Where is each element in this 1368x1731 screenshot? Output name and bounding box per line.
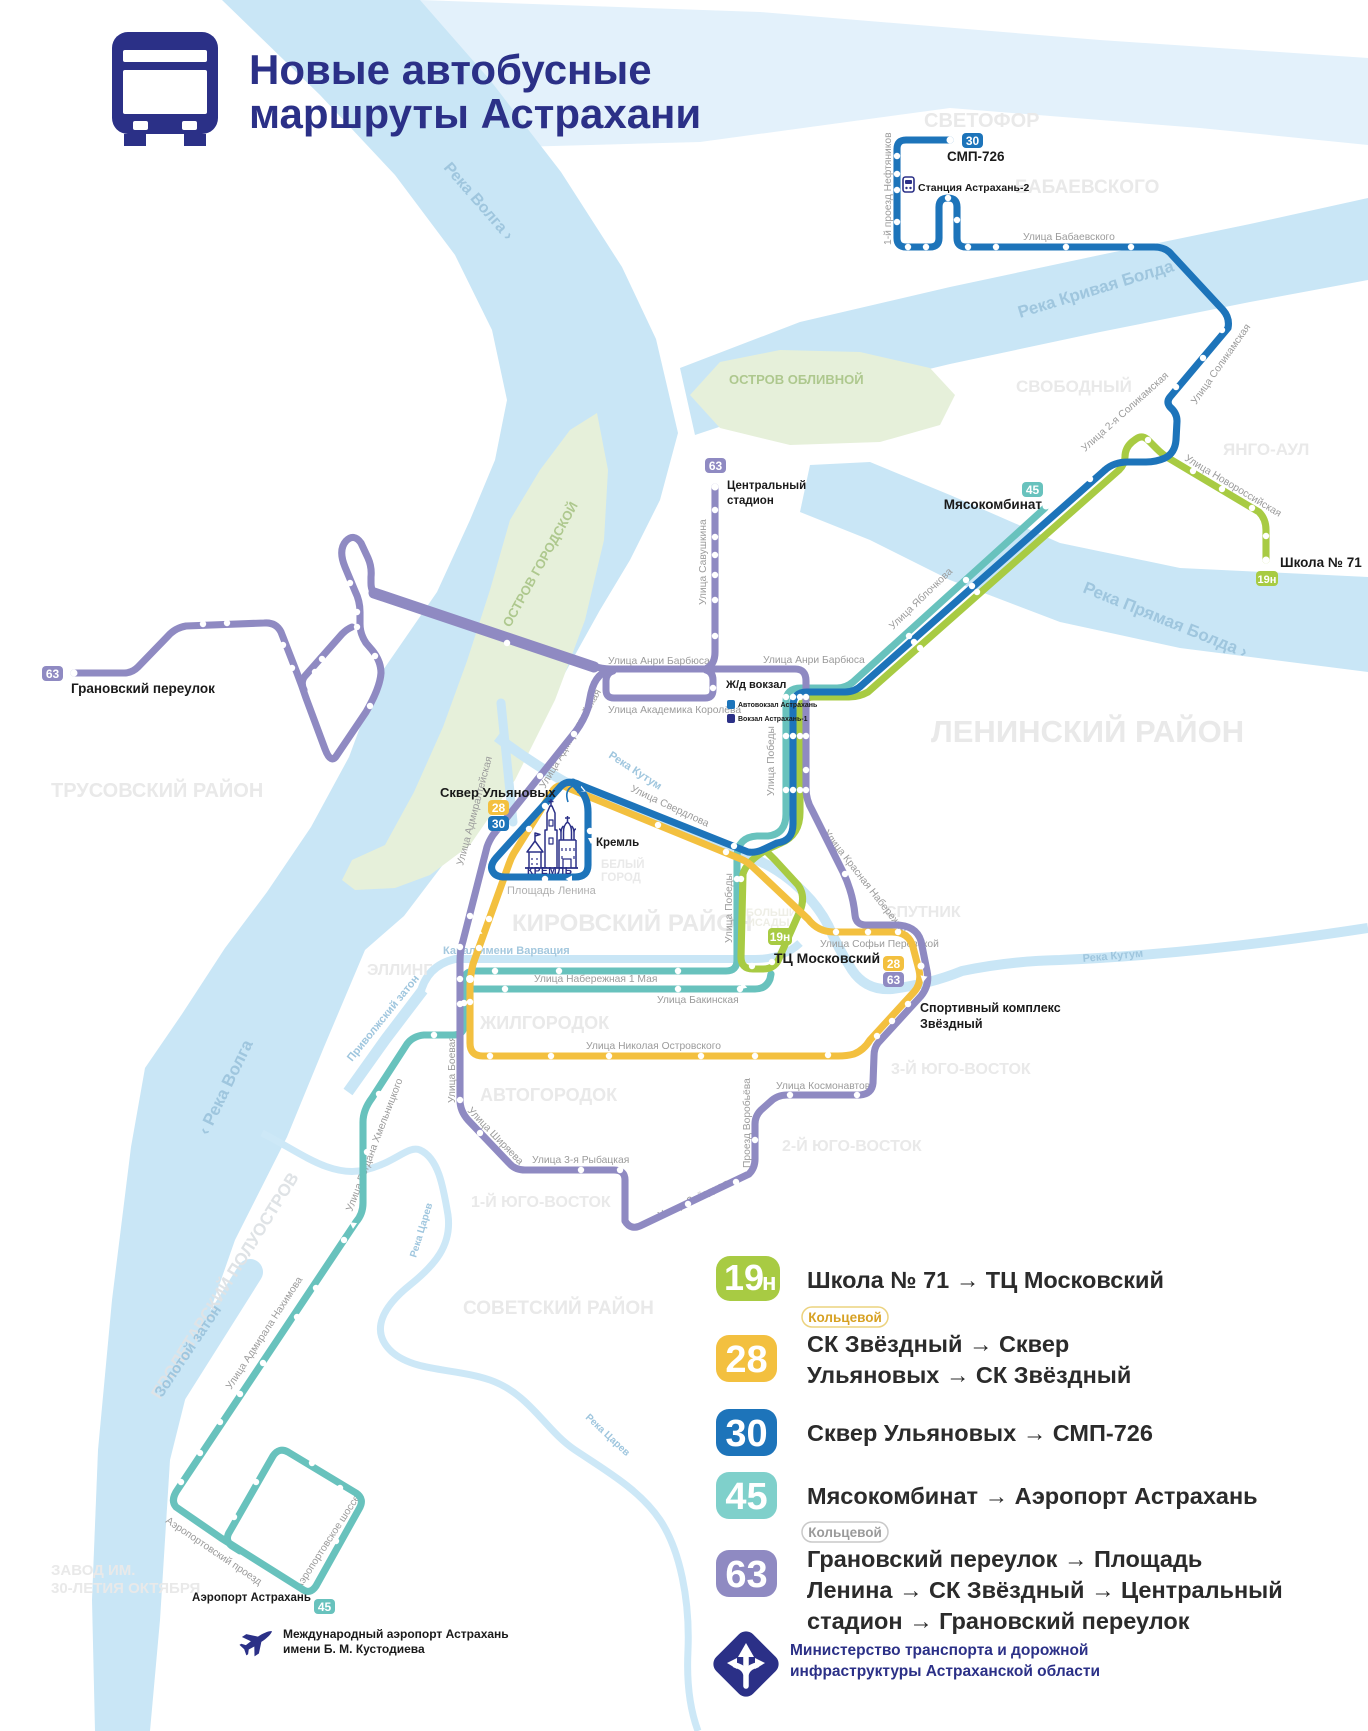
svg-text:1-Й ЮГО-ВОСТОК: 1-Й ЮГО-ВОСТОК: [471, 1192, 611, 1211]
svg-text:45: 45: [1026, 483, 1040, 497]
svg-text:Грановский переулок: Грановский переулок: [71, 681, 215, 696]
svg-text:Улица 3-я Рыбацкая: Улица 3-я Рыбацкая: [532, 1154, 629, 1166]
svg-text:Мясокомбинат → Аэропорт Астрах: Мясокомбинат → Аэропорт Астрахань: [807, 1483, 1258, 1509]
svg-text:Сквер Ульяновых → СМП-726: Сквер Ульяновых → СМП-726: [807, 1420, 1153, 1446]
svg-text:Кремль: Кремль: [596, 837, 639, 849]
svg-text:45: 45: [725, 1476, 767, 1518]
svg-text:Улица Набережная 1 Мая: Улица Набережная 1 Мая: [534, 973, 657, 985]
svg-text:30-ЛЕТИЯ ОКТЯБРЯ: 30-ЛЕТИЯ ОКТЯБРЯ: [51, 1580, 200, 1597]
svg-text:19н: 19н: [1258, 574, 1277, 586]
svg-text:ТРУСОВСКИЙ РАЙОН: ТРУСОВСКИЙ РАЙОН: [51, 778, 263, 802]
svg-text:н: н: [762, 1269, 777, 1296]
svg-text:ТЦ Московский: ТЦ Московский: [774, 950, 880, 966]
svg-text:Звёздный: Звёздный: [920, 1017, 983, 1031]
svg-text:ОСТРОВ ОБЛИВНОЙ: ОСТРОВ ОБЛИВНОЙ: [729, 372, 864, 387]
svg-text:30: 30: [492, 817, 506, 831]
svg-text:СМП-726: СМП-726: [947, 149, 1005, 164]
svg-text:Автовокзал Астрахань: Автовокзал Астрахань: [738, 702, 818, 709]
svg-text:СОВЕТСКИЙ РАЙОН: СОВЕТСКИЙ РАЙОН: [463, 1297, 654, 1319]
svg-text:63: 63: [725, 1554, 767, 1596]
svg-text:63: 63: [709, 459, 723, 473]
svg-text:ЯНГО-АУЛ: ЯНГО-АУЛ: [1223, 440, 1309, 459]
svg-text:Школа № 71: Школа № 71: [1280, 555, 1362, 570]
svg-text:Мясокомбинат: Мясокомбинат: [944, 497, 1043, 512]
svg-text:БАБАЕВСКОГО: БАБАЕВСКОГО: [1015, 177, 1159, 198]
svg-text:28: 28: [887, 957, 901, 971]
svg-text:БЕЛЫЙ: БЕЛЫЙ: [601, 858, 645, 871]
svg-text:3-Й ЮГО-ВОСТОК: 3-Й ЮГО-ВОСТОК: [891, 1059, 1031, 1078]
svg-text:Грановский переулок → Площадь: Грановский переулок → Площадь: [807, 1546, 1202, 1572]
svg-text:Международный аэропорт Астраха: Международный аэропорт Астрахань: [283, 1627, 509, 1641]
svg-text:СК Звёздный → Сквер: СК Звёздный → Сквер: [807, 1331, 1069, 1357]
svg-text:Ж/д вокзал: Ж/д вокзал: [725, 679, 786, 691]
svg-text:30: 30: [966, 134, 980, 148]
svg-text:63: 63: [887, 973, 901, 987]
svg-text:ИСАДЫ: ИСАДЫ: [747, 917, 790, 929]
svg-text:Министерство транспорта и доро: Министерство транспорта и дорожной: [790, 1642, 1088, 1659]
svg-text:Кольцевой: Кольцевой: [808, 1310, 882, 1325]
svg-text:Улица Боевая: Улица Боевая: [447, 1036, 458, 1103]
svg-text:Улица Академика Королёва: Улица Академика Королёва: [608, 705, 741, 716]
svg-text:АВТОГОРОДОК: АВТОГОРОДОК: [480, 1085, 618, 1105]
svg-text:Сквер Ульяновых: Сквер Ульяновых: [440, 785, 556, 800]
svg-text:ЛЕНИНСКИЙ РАЙОН: ЛЕНИНСКИЙ РАЙОН: [931, 713, 1244, 749]
svg-text:Новые автобусные: Новые автобусные: [249, 46, 652, 93]
svg-text:Улица Победы: Улица Победы: [723, 873, 735, 943]
svg-text:Проезд Воробьёва: Проезд Воробьёва: [741, 1078, 753, 1168]
svg-text:СВЕТОФОР: СВЕТОФОР: [924, 110, 1039, 132]
svg-text:ГОРОД: ГОРОД: [601, 872, 641, 884]
svg-text:Улица Победы: Улица Победы: [765, 726, 777, 796]
svg-text:Улица Анри Барбюса: Улица Анри Барбюса: [763, 654, 865, 666]
svg-text:маршруты Астрахани: маршруты Астрахани: [249, 90, 701, 137]
svg-text:19н: 19н: [770, 930, 791, 944]
svg-text:инфраструктуры Астраханской об: инфраструктуры Астраханской области: [790, 1663, 1100, 1680]
svg-text:Кольцевой: Кольцевой: [808, 1525, 882, 1540]
svg-text:Центральный: Центральный: [727, 480, 806, 492]
svg-text:Ульяновых → СК Звёздный: Ульяновых → СК Звёздный: [807, 1362, 1131, 1388]
svg-text:Улица Бабаевского: Улица Бабаевского: [1023, 231, 1115, 243]
svg-text:Аэропорт Астрахань: Аэропорт Астрахань: [192, 1592, 311, 1604]
svg-text:19: 19: [724, 1257, 764, 1298]
svg-text:Ленина → СК Звёздный → Централ: Ленина → СК Звёздный → Центральный: [807, 1577, 1283, 1603]
svg-text:Школа № 71 → ТЦ Московский: Школа № 71 → ТЦ Московский: [807, 1267, 1164, 1293]
svg-text:Площадь Ленина: Площадь Ленина: [507, 885, 597, 897]
svg-text:28: 28: [492, 801, 506, 815]
svg-text:Спортивный комплекс: Спортивный комплекс: [920, 1001, 1061, 1015]
svg-text:ЭЛЛИНГ: ЭЛЛИНГ: [367, 962, 432, 979]
svg-text:Улица Бакинская: Улица Бакинская: [657, 995, 739, 1006]
svg-text:30: 30: [725, 1413, 767, 1455]
svg-text:Улица Космонавтов: Улица Космонавтов: [776, 1081, 871, 1092]
svg-text:имени Б. М. Кустодиева: имени Б. М. Кустодиева: [283, 1642, 425, 1656]
svg-text:стадион: стадион: [727, 495, 774, 507]
svg-text:1-й проезд Нефтяников: 1-й проезд Нефтяников: [882, 132, 894, 245]
svg-text:КИРОВСКИЙ РАЙОН: КИРОВСКИЙ РАЙОН: [512, 909, 752, 937]
svg-text:СВОБОДНЫЙ: СВОБОДНЫЙ: [1016, 377, 1132, 396]
svg-text:Улица Анри Барбюса: Улица Анри Барбюса: [608, 655, 710, 667]
svg-text:28: 28: [725, 1339, 767, 1381]
svg-text:Станция Астрахань-2: Станция Астрахань-2: [918, 182, 1030, 194]
svg-text:2-Й ЮГО-ВОСТОК: 2-Й ЮГО-ВОСТОК: [782, 1136, 922, 1155]
svg-text:Улица Савушкина: Улица Савушкина: [698, 519, 709, 605]
svg-text:Улица Николая Островского: Улица Николая Островского: [586, 1041, 721, 1052]
svg-text:63: 63: [46, 667, 60, 681]
svg-text:ЗАВОД ИМ.: ЗАВОД ИМ.: [51, 1562, 135, 1579]
svg-text:45: 45: [318, 1600, 332, 1614]
svg-text:стадион → Грановский переулок: стадион → Грановский переулок: [807, 1608, 1190, 1634]
svg-text:ЖИЛГОРОДОК: ЖИЛГОРОДОК: [479, 1013, 610, 1033]
svg-text:Вокзал Астрахань-1: Вокзал Астрахань-1: [738, 716, 808, 723]
